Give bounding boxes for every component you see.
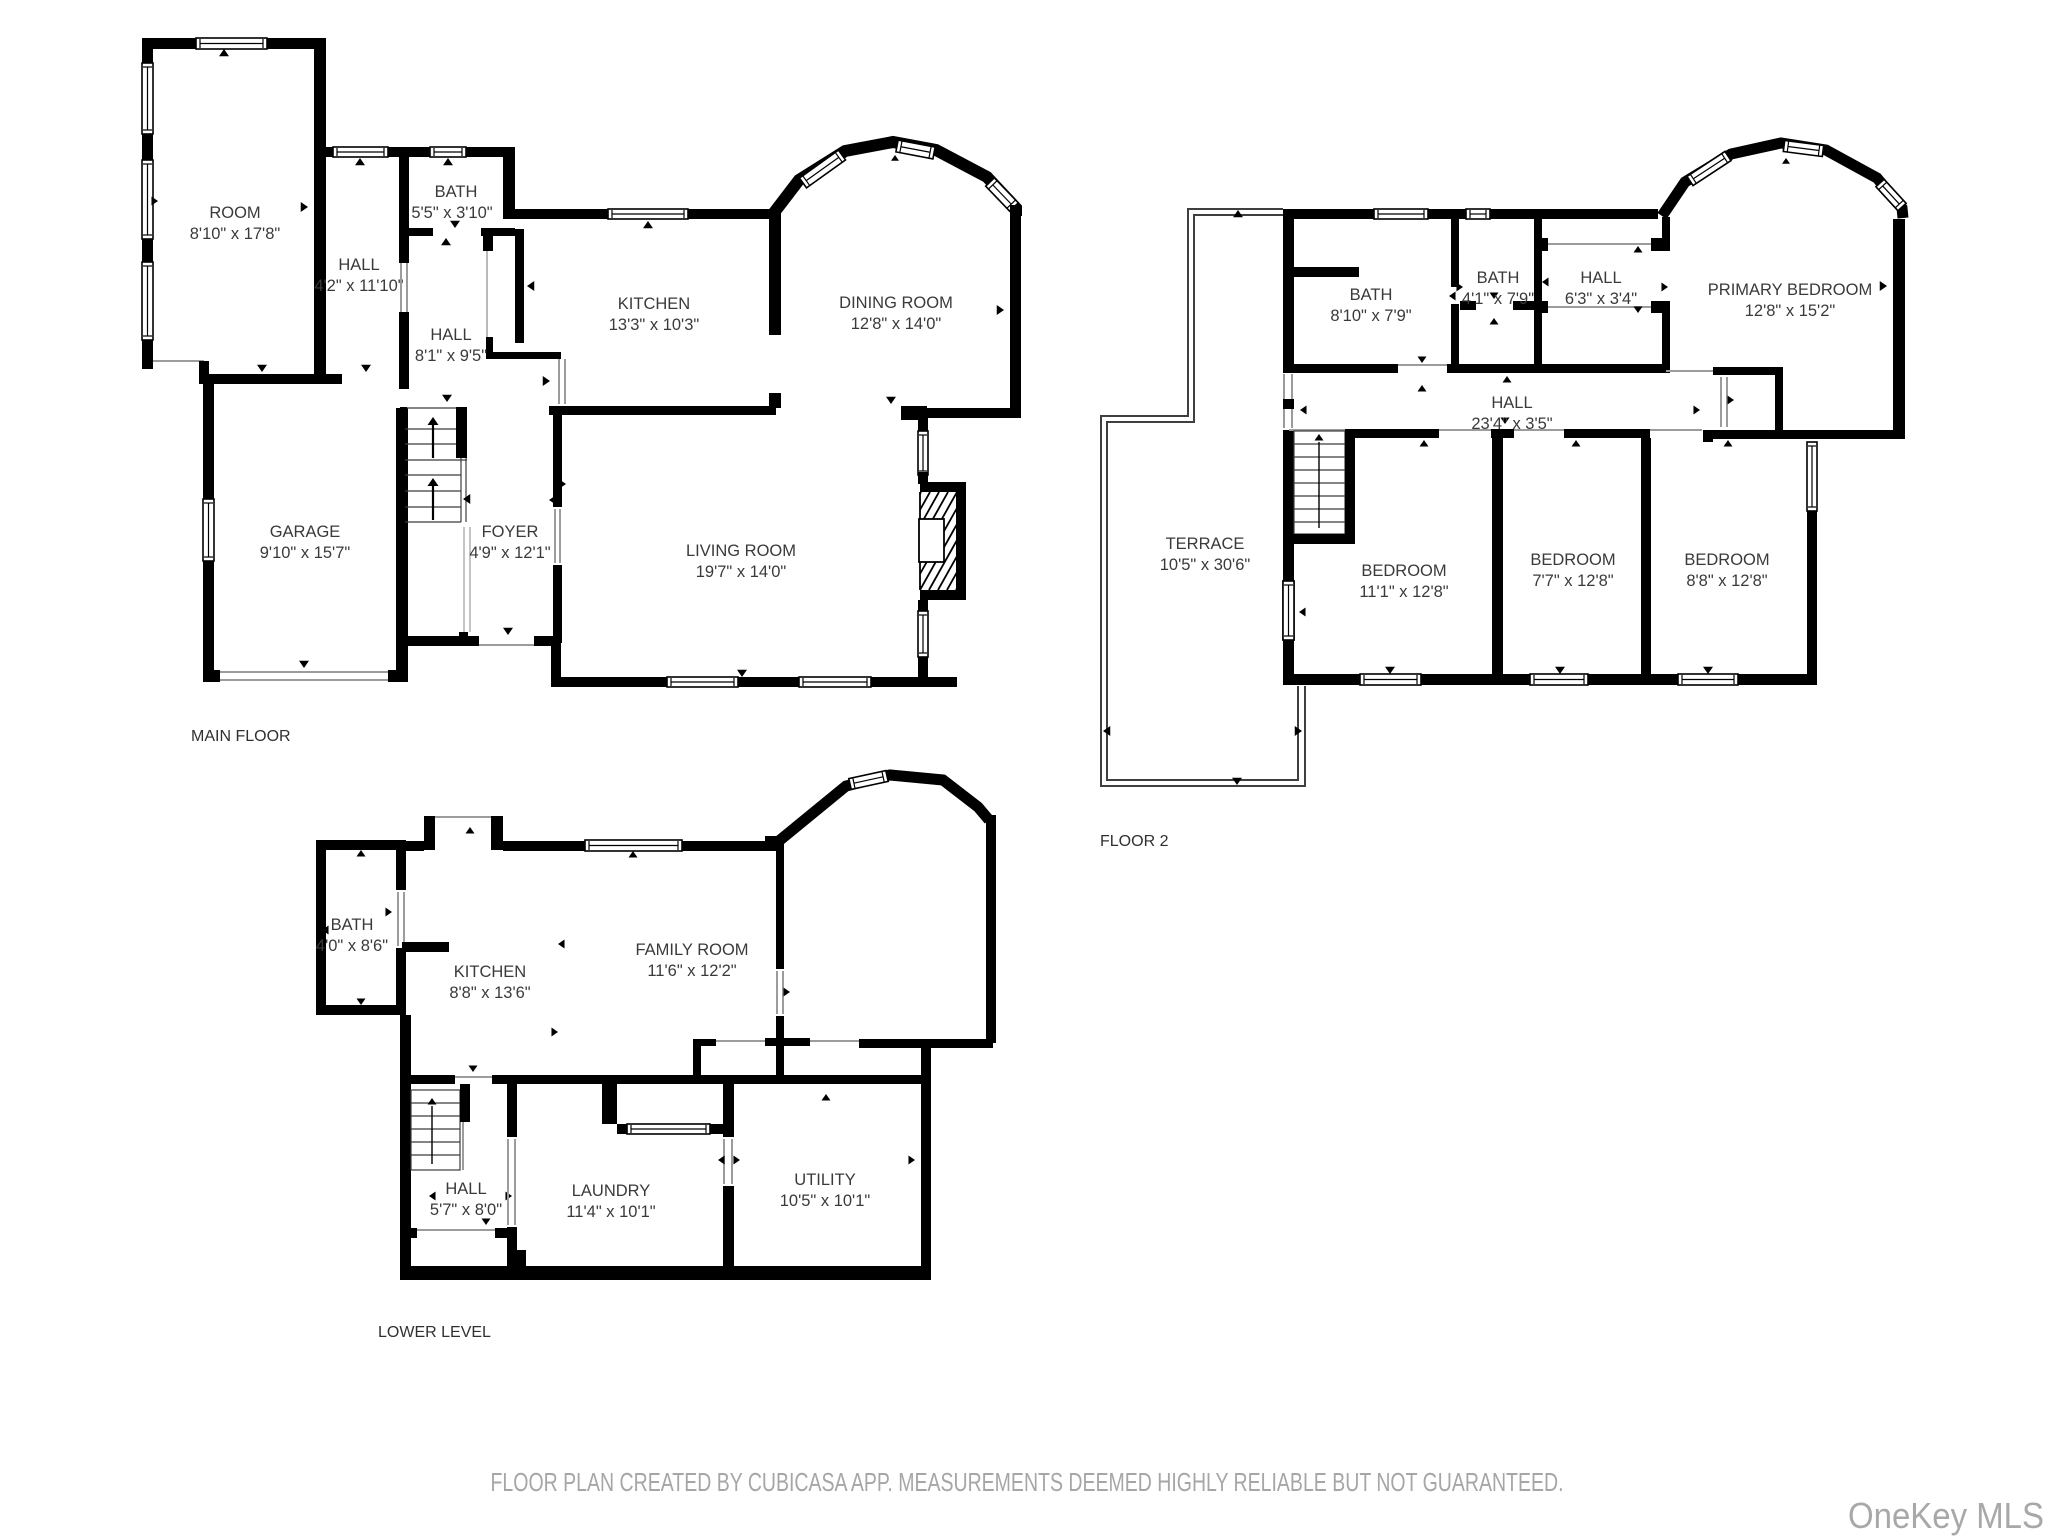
svg-text:ROOM: ROOM: [209, 204, 260, 222]
svg-text:BATH: BATH: [1477, 269, 1520, 287]
svg-text:BEDROOM: BEDROOM: [1361, 562, 1446, 580]
svg-text:19'7" x 14'0": 19'7" x 14'0": [696, 563, 787, 581]
svg-text:KITCHEN: KITCHEN: [454, 963, 526, 981]
svg-text:8'8" x 13'6": 8'8" x 13'6": [449, 984, 530, 1002]
svg-text:9'10" x 15'7": 9'10" x 15'7": [260, 544, 351, 562]
svg-text:PRIMARY BEDROOM: PRIMARY BEDROOM: [1708, 281, 1872, 299]
svg-text:10'5" x 10'1": 10'5" x 10'1": [780, 1192, 871, 1210]
svg-text:4'2" x 11'10": 4'2" x 11'10": [314, 277, 403, 295]
svg-text:OneKey MLS: OneKey MLS: [1848, 1495, 2044, 1536]
svg-text:11'1" x 12'8": 11'1" x 12'8": [1359, 583, 1448, 601]
svg-text:FLOOR PLAN CREATED BY CUBICASA: FLOOR PLAN CREATED BY CUBICASA APP. MEAS…: [491, 1467, 1564, 1497]
svg-text:8'1" x 9'5": 8'1" x 9'5": [415, 347, 487, 365]
svg-text:DINING ROOM: DINING ROOM: [839, 294, 953, 312]
svg-text:5'7" x 8'0": 5'7" x 8'0": [430, 1201, 502, 1219]
svg-text:8'8" x 12'8": 8'8" x 12'8": [1686, 572, 1767, 590]
svg-text:BATH: BATH: [331, 916, 374, 934]
svg-text:HALL: HALL: [430, 326, 471, 344]
svg-text:BEDROOM: BEDROOM: [1684, 551, 1769, 569]
svg-text:10'5" x 30'6": 10'5" x 30'6": [1160, 556, 1251, 574]
svg-text:FLOOR 2: FLOOR 2: [1100, 833, 1169, 850]
svg-text:4'0" x 8'6": 4'0" x 8'6": [316, 937, 388, 955]
svg-text:13'3" x 10'3": 13'3" x 10'3": [609, 316, 700, 334]
svg-text:FOYER: FOYER: [482, 523, 539, 541]
svg-text:BATH: BATH: [435, 183, 478, 201]
svg-text:23'4" x 3'5": 23'4" x 3'5": [1471, 415, 1552, 433]
svg-text:8'10" x 7'9": 8'10" x 7'9": [1330, 307, 1411, 325]
svg-text:GARAGE: GARAGE: [270, 523, 341, 541]
svg-text:HALL: HALL: [445, 1180, 486, 1198]
svg-text:LIVING ROOM: LIVING ROOM: [686, 542, 796, 560]
svg-text:KITCHEN: KITCHEN: [618, 295, 690, 313]
svg-text:TERRACE: TERRACE: [1166, 535, 1245, 553]
svg-text:11'6" x 12'2": 11'6" x 12'2": [647, 962, 736, 980]
svg-text:HALL: HALL: [338, 256, 379, 274]
svg-text:8'10" x 17'8": 8'10" x 17'8": [190, 225, 281, 243]
svg-text:11'4" x 10'1": 11'4" x 10'1": [566, 1203, 655, 1221]
svg-text:LAUNDRY: LAUNDRY: [572, 1182, 651, 1200]
svg-text:7'7" x 12'8": 7'7" x 12'8": [1532, 572, 1613, 590]
svg-text:12'8" x 14'0": 12'8" x 14'0": [851, 315, 942, 333]
svg-text:6'3" x 3'4": 6'3" x 3'4": [1565, 290, 1637, 308]
svg-text:HALL: HALL: [1580, 269, 1621, 287]
svg-text:BATH: BATH: [1350, 286, 1393, 304]
svg-text:HALL: HALL: [1491, 394, 1532, 412]
svg-text:BEDROOM: BEDROOM: [1530, 551, 1615, 569]
svg-text:FAMILY ROOM: FAMILY ROOM: [635, 941, 748, 959]
svg-text:4'1" x 7'9": 4'1" x 7'9": [1462, 290, 1534, 308]
svg-text:MAIN FLOOR: MAIN FLOOR: [191, 728, 291, 745]
svg-text:4'9" x 12'1": 4'9" x 12'1": [469, 544, 550, 562]
svg-text:LOWER LEVEL: LOWER LEVEL: [378, 1324, 491, 1341]
svg-text:5'5" x 3'10": 5'5" x 3'10": [411, 204, 492, 222]
svg-text:12'8" x 15'2": 12'8" x 15'2": [1745, 302, 1836, 320]
svg-text:UTILITY: UTILITY: [794, 1171, 855, 1189]
